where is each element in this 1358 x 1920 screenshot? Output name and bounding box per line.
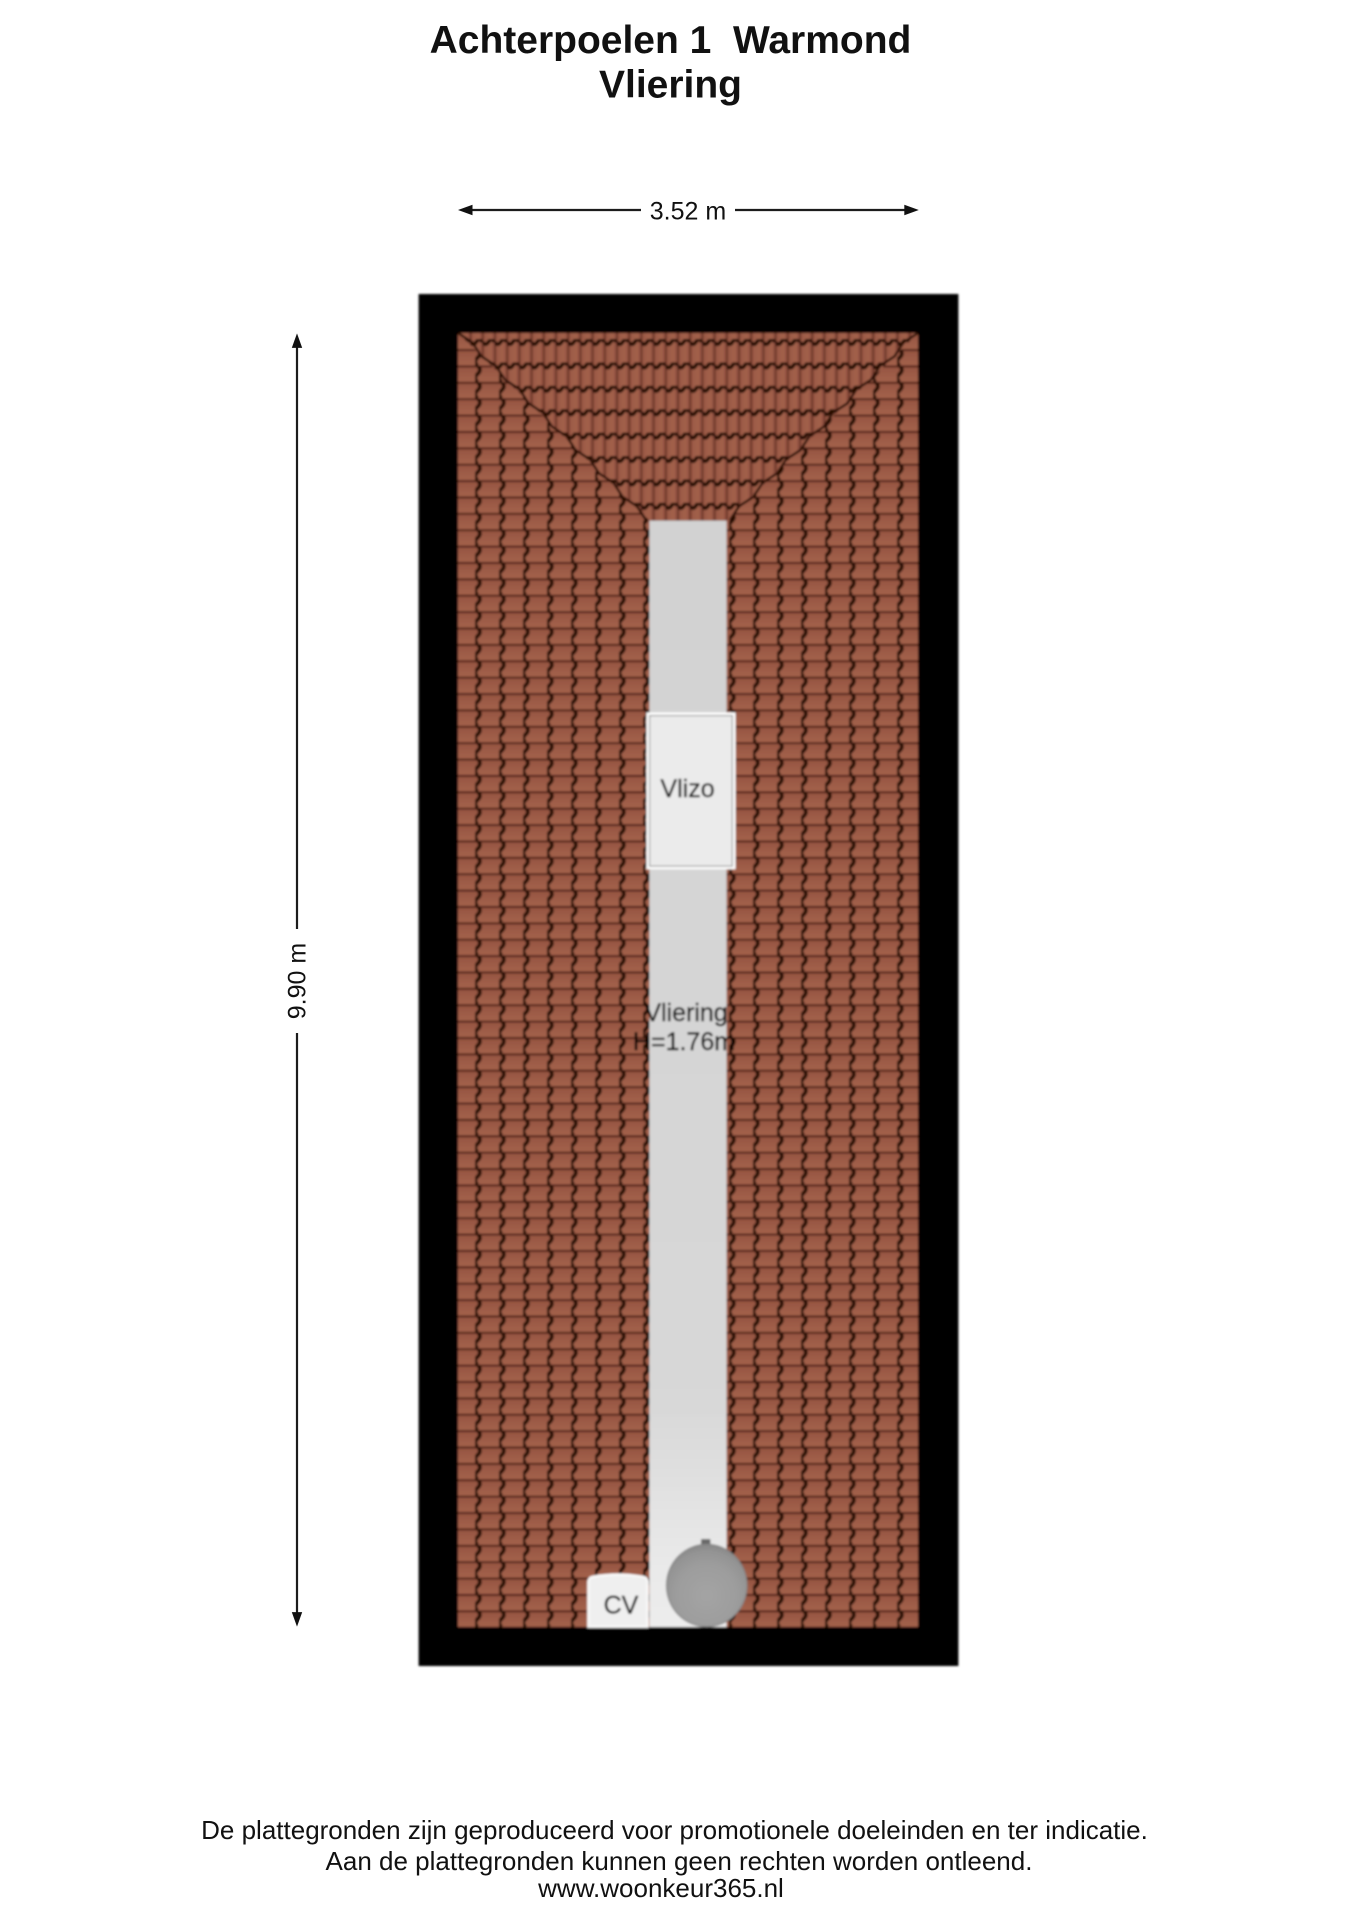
svg-text:H=1.76m: H=1.76m — [633, 1028, 735, 1056]
svg-text:De plattegronden zijn geproduc: De plattegronden zijn geproduceerd voor … — [201, 1815, 1148, 1845]
svg-text:Vliering: Vliering — [644, 999, 727, 1027]
svg-text:CV: CV — [604, 1592, 639, 1620]
svg-text:www.woonkeur365.nl: www.woonkeur365.nl — [537, 1873, 784, 1903]
svg-text:3.52 m: 3.52 m — [650, 198, 726, 226]
svg-text:Achterpoelen 1 Warmond: Achterpoelen 1 Warmond — [430, 19, 912, 62]
svg-text:9.90 m: 9.90 m — [284, 943, 312, 1019]
svg-text:Aan de plattegronden kunnen ge: Aan de plattegronden kunnen geen rechten… — [326, 1846, 1033, 1876]
svg-text:Vlizo: Vlizo — [660, 775, 714, 803]
svg-text:Vliering: Vliering — [599, 64, 742, 107]
